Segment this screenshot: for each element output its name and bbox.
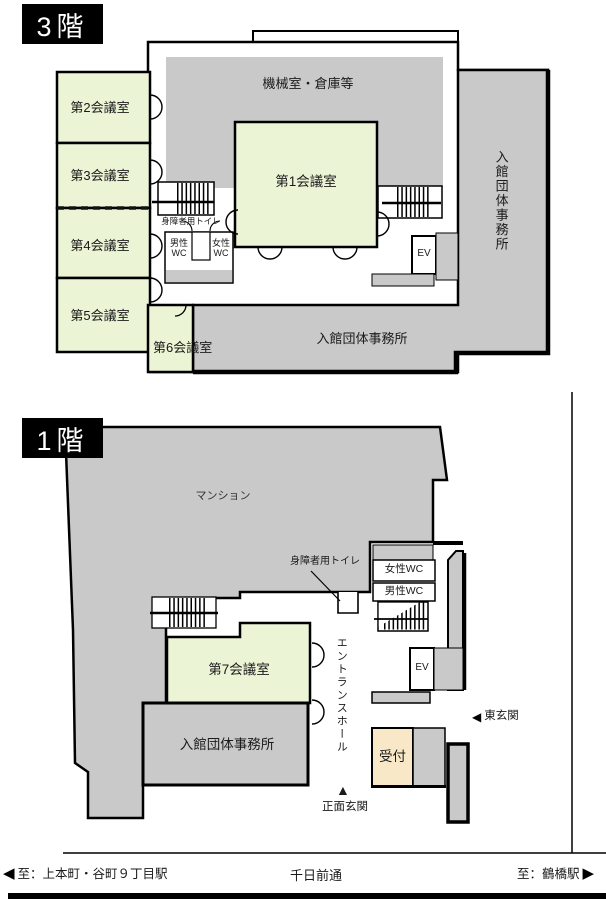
left-arrow-icon: ◀ [3,865,15,883]
mansion-label: マンション [163,490,283,503]
east-entrance: ◀ 東玄関 [472,710,519,724]
street-name-label: 千日前通 [268,868,364,884]
womens-wc-3f-label: 女性WC [209,238,233,259]
stairs-1f-right [374,602,428,631]
accessible-toilet-1f-box [338,592,358,613]
mens-wc-1f-label: 男性WC [373,585,435,598]
elevator-3f-label: EV [412,248,436,260]
elevator-1f-label: EV [410,662,434,674]
wall-block [373,545,433,560]
main-entrance-label: 正面玄関 [314,801,376,815]
meeting3-label: 第3会議室 [58,168,142,184]
floor3-badge: 3階 [22,4,103,44]
mens-wc-3f-label: 男性WC [167,238,191,259]
right-arrow-icon: ▶ [583,865,595,883]
floor1-badge: 1階 [22,418,103,458]
wall-block [434,648,463,690]
door-icon [312,643,324,667]
womens-wc-1f-label: 女性WC [373,563,435,576]
floor-plan-page: 3階 機械室・倉庫等 第1会議室 第2会議室 第3会議室 第4会議室 第5会議室… [0,0,606,899]
stairs-1f-left [150,597,218,628]
east-wall-column [448,744,468,822]
meeting5-label: 第5会議室 [58,308,142,324]
direction-right-label: 至：鶴橋駅 [517,867,580,882]
office-right-3f-label: 入館団体事務所 [493,150,509,252]
accessible-toilet-1f-label: 身障者用トイレ [279,556,371,568]
direction-left-label: 至：上本町・谷町９丁目駅 [18,867,168,882]
door-icon [312,700,324,724]
meeting2-label: 第2会議室 [58,100,142,116]
wall-block [436,233,458,280]
left-arrow-icon: ◀ [472,710,481,724]
accessible-toilet-3f-label: 身障者用トイレ [156,216,226,226]
up-arrow-icon: ▲ [336,782,350,799]
direction-left: ◀ 至：上本町・谷町９丁目駅 [3,865,168,883]
meeting1-label: 第1会議室 [236,174,376,190]
stairs-3f-right [378,186,442,218]
stairs-3f-left [152,182,214,215]
parapet-line-3f [253,31,458,42]
wall-block [372,692,430,703]
entrance-hall-label: エントランスホール [334,637,347,754]
reception-label: 受付 [372,749,413,765]
east-entrance-label: 東玄関 [484,710,519,724]
wall-block [413,728,445,787]
meeting7-label: 第7会議室 [168,662,310,678]
meeting6-label: 第6会議室 [153,340,243,356]
meeting4-label: 第4会議室 [58,238,142,254]
street-bottom-line [8,893,606,899]
direction-right: 至：鶴橋駅 ▶ [517,865,594,883]
office-bottom-3f-label: 入館団体事務所 [282,331,442,347]
office-1f-label: 入館団体事務所 [147,737,307,753]
wall-block [372,274,434,286]
machine-room-label: 機械室・倉庫等 [205,76,411,92]
room-meeting6 [148,305,193,372]
